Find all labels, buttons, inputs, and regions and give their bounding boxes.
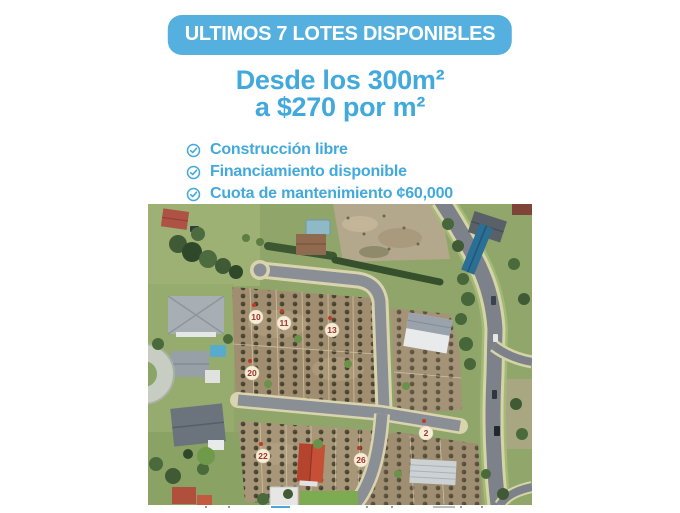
strip-dot bbox=[205, 506, 207, 508]
strip-dot bbox=[366, 506, 368, 508]
svg-text:11: 11 bbox=[280, 318, 289, 328]
strip-gray-dash bbox=[433, 506, 455, 508]
strip-blue-dash bbox=[271, 506, 290, 508]
svg-text:20: 20 bbox=[247, 368, 257, 378]
headline-line2: a $270 por m² bbox=[0, 94, 680, 121]
svg-text:2: 2 bbox=[424, 428, 429, 438]
flyer-poster: ULTIMOS 7 LOTES DISPONIBLES Desde los 30… bbox=[0, 0, 680, 513]
strip-dot bbox=[481, 506, 483, 508]
aerial-map-svg: 10 11 13 20 bbox=[148, 204, 532, 505]
svg-text:10: 10 bbox=[251, 312, 261, 322]
feature-label: Cuota de mantenimiento ¢60,000 bbox=[210, 185, 453, 203]
headline-line1: Desde los 300m² bbox=[0, 67, 680, 94]
strip-dot bbox=[391, 506, 393, 508]
svg-text:22: 22 bbox=[258, 451, 268, 461]
check-circle-icon bbox=[186, 143, 201, 158]
feature-item-construccion: Construcción libre bbox=[186, 139, 453, 161]
feature-list: Construcción libre Financiamiento dispon… bbox=[186, 139, 453, 205]
check-circle-icon bbox=[186, 187, 201, 202]
strip-dot bbox=[460, 506, 462, 508]
svg-text:26: 26 bbox=[356, 455, 366, 465]
banner: ULTIMOS 7 LOTES DISPONIBLES bbox=[168, 15, 512, 55]
banner-text: ULTIMOS 7 LOTES DISPONIBLES bbox=[185, 23, 495, 45]
feature-item-cuota: Cuota de mantenimiento ¢60,000 bbox=[186, 183, 453, 205]
strip-dot bbox=[228, 506, 230, 508]
aerial-scene: 10 11 13 20 bbox=[148, 204, 532, 505]
svg-text:13: 13 bbox=[327, 325, 337, 335]
feature-label: Construcción libre bbox=[210, 141, 348, 159]
feature-label: Financiamiento disponible bbox=[210, 163, 407, 181]
red-roof-house bbox=[296, 443, 325, 487]
aerial-map-image: 10 11 13 20 bbox=[148, 204, 532, 505]
check-circle-icon bbox=[186, 165, 201, 180]
cropped-bottom-strip bbox=[0, 505, 680, 513]
feature-item-financiamiento: Financiamiento disponible bbox=[186, 161, 453, 183]
headline: Desde los 300m² a $270 por m² bbox=[0, 67, 680, 121]
